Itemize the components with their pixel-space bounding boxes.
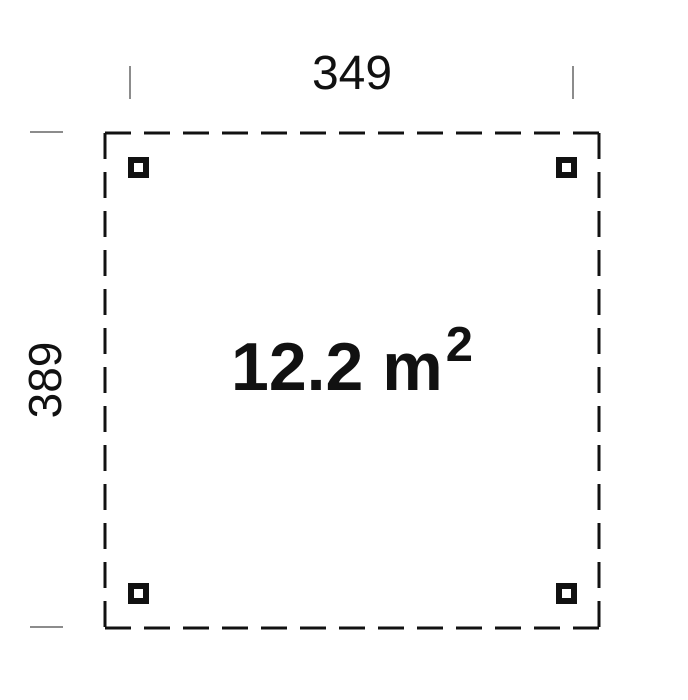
area-label: 12.2 m2 [231,333,473,401]
width-dimension-label: 349 [105,50,599,98]
height-dimension-label: 389 [22,342,68,419]
area-label-container: 12.2 m2 [105,133,599,628]
area-value: 12.2 m [231,329,443,405]
area-exponent: 2 [446,321,473,370]
floor-plan: 349 389 12.2 m2 [0,0,688,700]
